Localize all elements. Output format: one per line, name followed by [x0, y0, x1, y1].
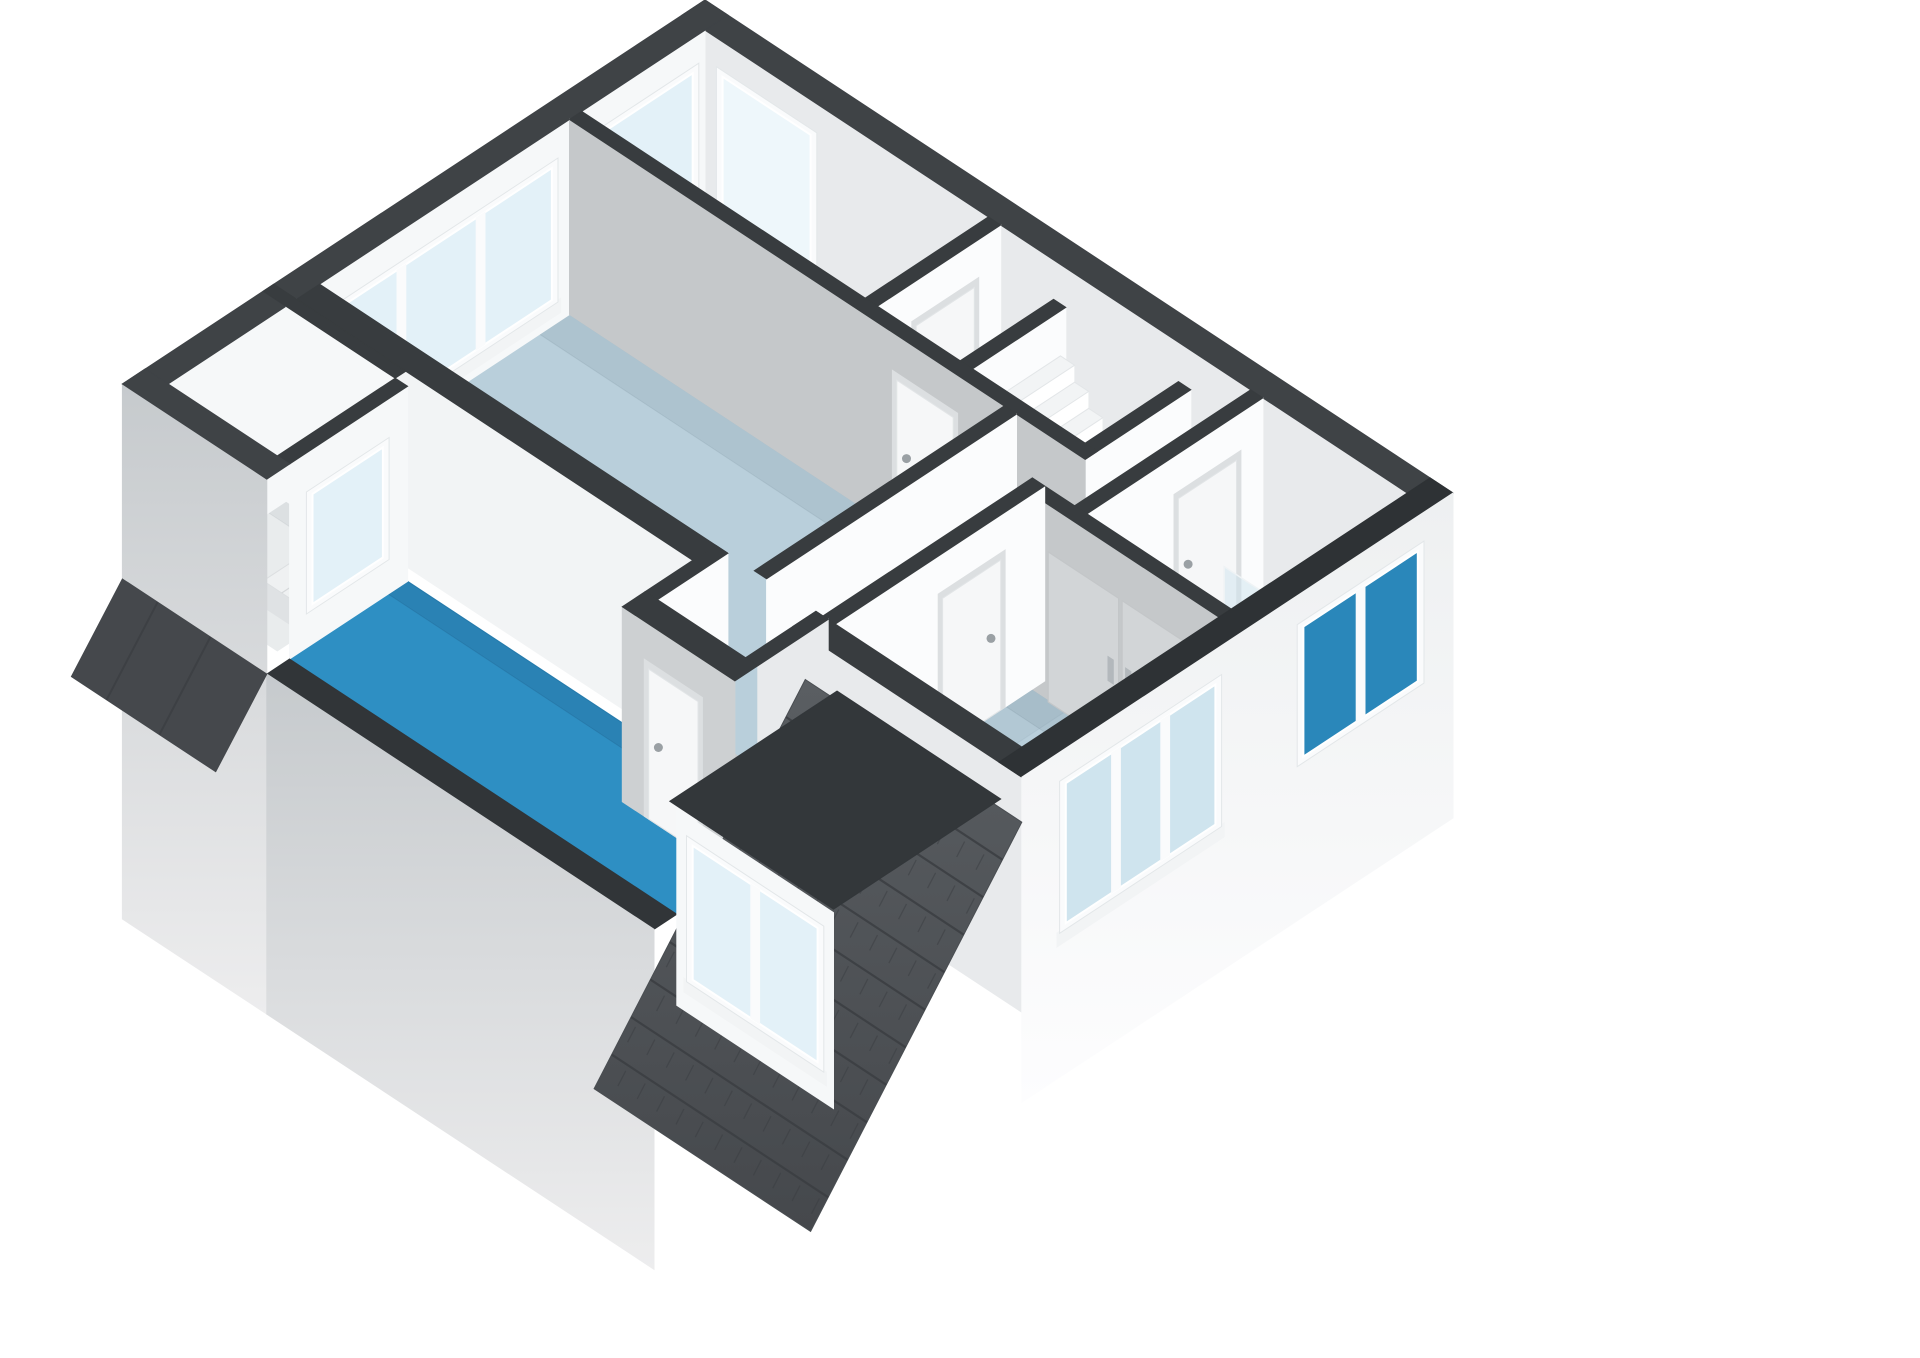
front-bedroom-door-handle-icon — [987, 634, 996, 643]
shower-room-door-handle-icon — [1184, 560, 1193, 569]
terrace-door-handle-icon — [654, 743, 663, 752]
dormer-window-mullion-1 — [751, 884, 760, 1024]
front-bedroom-window-se-mullion-1 — [1161, 715, 1170, 861]
shower-window-se-mullion-1 — [1356, 586, 1365, 722]
page — [0, 0, 1920, 1358]
front-bedroom-window-se-mullion-2 — [1112, 747, 1121, 893]
closet-sliding-doors-handle-1 — [1108, 657, 1113, 685]
back-bedroom-window-strip-mullion-1 — [476, 212, 485, 350]
floor-plan-3d-render — [0, 0, 1920, 1358]
back-bedroom-door-handle-icon — [902, 454, 911, 463]
